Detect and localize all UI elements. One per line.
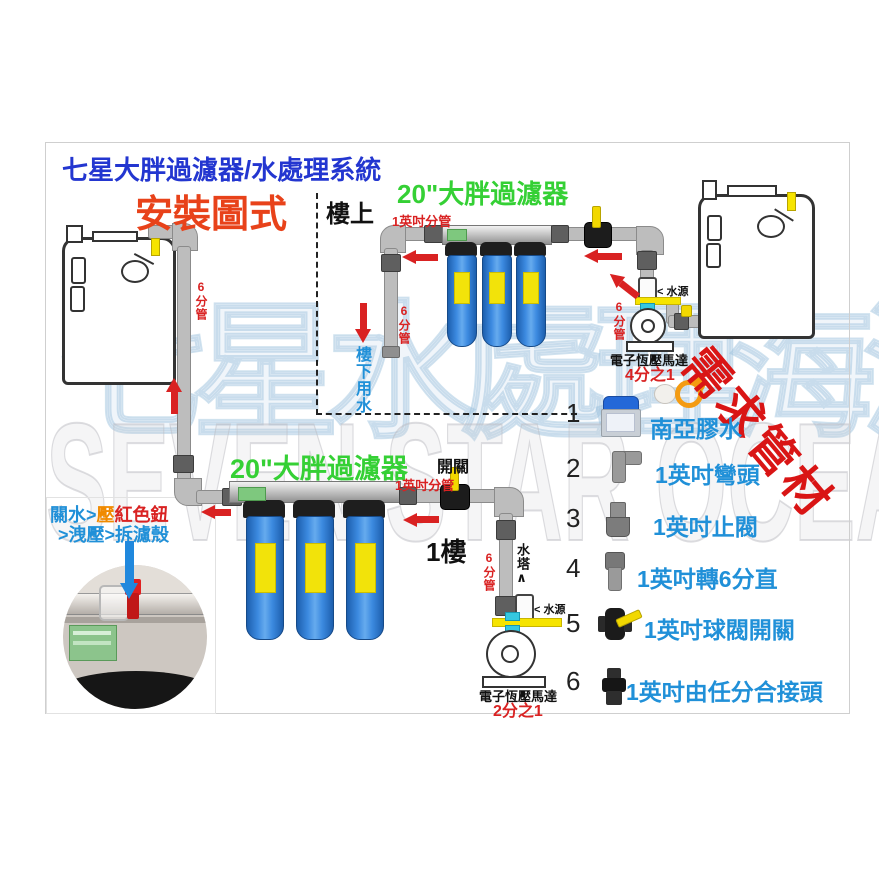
left-tank-float-ball (121, 260, 149, 283)
to-water-tower-text: 水塔 (515, 543, 530, 571)
ground-water-source-label: < 水源 (534, 601, 565, 617)
upstairs-zone-label: 樓上 (326, 194, 374, 229)
ground-bracket-sticker (238, 487, 266, 501)
left-tank-level-gauge (70, 286, 85, 312)
left-tank-level-gauge (71, 257, 86, 284)
ground-floor-label: 1樓 (426, 532, 466, 569)
ground-pump-hub (501, 645, 519, 663)
flow-arrow-up (166, 378, 182, 414)
left-riser-union-fitting (173, 455, 194, 473)
upstairs-right-fitting (551, 225, 569, 243)
part-number: 4 (566, 553, 580, 584)
elbow-fitting-icon (612, 451, 642, 483)
to-water-tower-label: 水塔∧ (513, 543, 532, 587)
part-number: 5 (566, 608, 580, 639)
up-caret-icon: ∧ (515, 571, 530, 587)
check-valve-icon (606, 502, 628, 536)
ground-pump-spec: 2分之1 (493, 697, 543, 721)
switch-label: 開關 (437, 453, 469, 477)
flow-arrow-left (403, 513, 439, 526)
reducer-icon (605, 552, 625, 590)
upstairs-housing-cap (514, 242, 546, 256)
photo-green-label-line (73, 631, 111, 635)
flow-arrow-down (355, 303, 371, 343)
ground-riser-pipe-label: 6分管 (481, 551, 498, 592)
housing-label (255, 543, 276, 593)
upstairs-pump-spec: 4分之1 (625, 361, 675, 385)
right-tank-lid (727, 185, 777, 197)
right-tank-inlet-nub (702, 180, 717, 200)
housing-label (523, 272, 539, 304)
photo-shadow (63, 671, 207, 709)
ground-branch-pipe-label: 1英吋分管 (395, 475, 454, 494)
ground-pump-coupler (505, 612, 520, 621)
flow-arrow-left (402, 250, 438, 264)
flow-arrow-left (201, 505, 231, 519)
left-tank-valve-nub (151, 238, 160, 256)
page-title: 七星大胖過濾器/水處理系統 (62, 150, 381, 187)
right-tank-level-gauge (706, 243, 721, 268)
pointer-arrow-to-button (120, 541, 138, 599)
right-tank-float-ball (757, 215, 785, 238)
left-tank-lid (92, 231, 138, 242)
upstairs-bracket-sticker (447, 229, 467, 241)
upstairs-valve-handle (592, 206, 601, 228)
downstairs-water-label: 樓下用水 (349, 346, 373, 414)
part-name: 1英吋球閥開關 (644, 611, 795, 645)
upstairs-inlet-reducer (637, 251, 657, 270)
upstairs-housing-cap (480, 242, 512, 256)
installation-diagram: 七星水處理海洋 SEVEN STAR OCEAN 七星大胖過濾器/水處理系統 安… (0, 0, 879, 879)
upstairs-right-pipe-label: 6分管 (611, 300, 628, 341)
union-fitting-icon (602, 668, 626, 706)
upstairs-housing-cap (445, 242, 477, 256)
part-name: 1英吋止閥 (653, 508, 758, 542)
photo-green-label-line (73, 641, 111, 645)
left-riser-pipe (177, 246, 191, 482)
left-riser-pipe-label: 6分管 (193, 280, 210, 321)
ground-filter-title: 20"大胖過濾器 (230, 447, 408, 486)
housing-label (355, 543, 376, 593)
upstairs-branch-end-cap (382, 346, 400, 358)
upstairs-branch-pipe-label: 1英吋分管 (392, 211, 451, 230)
ground-pump-outlet-pipe (492, 618, 562, 627)
housing-label (489, 272, 505, 304)
upstairs-filter-title: 20"大胖過濾器 (397, 174, 568, 211)
part-number: 6 (566, 666, 580, 697)
part-name: 1英吋轉6分直 (637, 560, 778, 594)
ground-riser-reducer (496, 520, 516, 540)
housing-label (305, 543, 326, 593)
part-number: 3 (566, 503, 580, 534)
ball-valve-icon (598, 606, 642, 646)
cotton-ball-icon (654, 384, 676, 404)
left-tank-inlet-nub (66, 225, 83, 243)
upstairs-zone-divider-vertical (316, 193, 318, 415)
right-tank-valve-nub (787, 192, 796, 211)
part-number: 1 (566, 398, 580, 429)
part-name: 1英吋彎頭 (655, 456, 760, 490)
part-name: 1英吋由任分合接頭 (626, 673, 823, 707)
glue-can-icon (601, 396, 639, 436)
part-number: 2 (566, 453, 580, 484)
upstairs-left-pipe-label: 6分管 (396, 304, 413, 345)
housing-label (454, 272, 470, 304)
upstairs-water-source-label: < 水源 (657, 283, 688, 299)
page-subtitle: 安裝圖式 (135, 183, 287, 238)
upstairs-branch-union (381, 254, 401, 272)
flow-arrow-left (584, 249, 622, 263)
upstairs-pump-hub (641, 319, 655, 333)
pump-to-tank-valve (681, 305, 692, 317)
part-name: 南亞膠水 (650, 410, 742, 444)
right-tank-level-gauge (707, 215, 722, 241)
pressure-release-instruction-line2: >洩壓>拆濾殼 (58, 521, 169, 547)
